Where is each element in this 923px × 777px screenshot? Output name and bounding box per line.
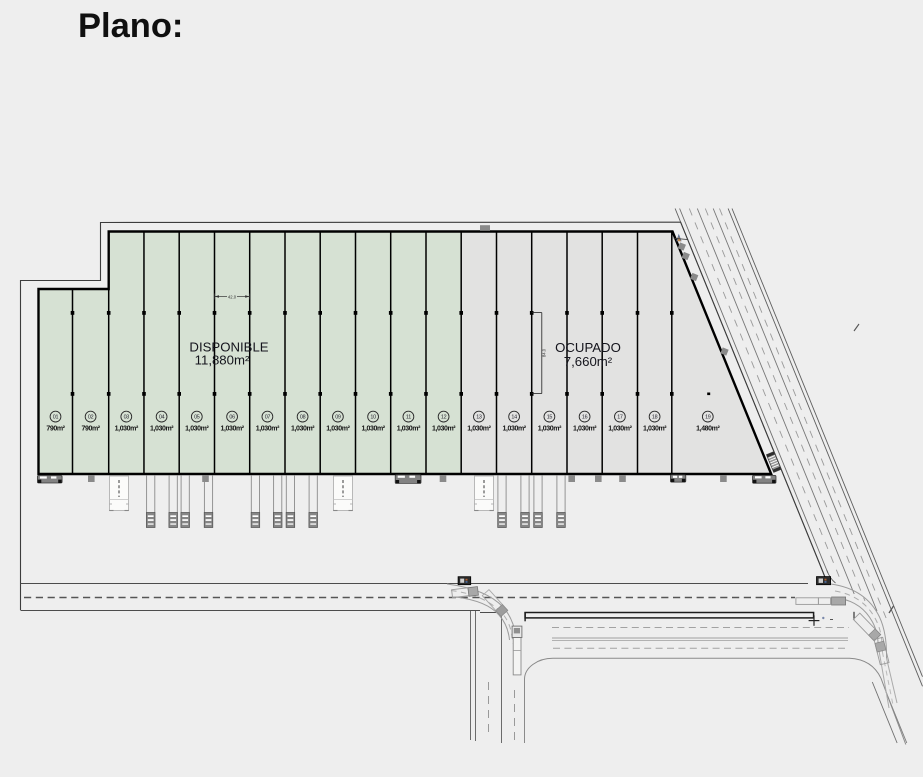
svg-text:42.0: 42.0: [228, 295, 237, 300]
svg-text:Plano:: Plano:: [78, 7, 183, 45]
svg-text:1,030m²: 1,030m²: [432, 425, 456, 432]
svg-text:15: 15: [547, 415, 553, 421]
svg-text:OCUPADO: OCUPADO: [555, 340, 621, 355]
svg-text:14: 14: [511, 415, 517, 421]
svg-text:1,030m²: 1,030m²: [538, 425, 562, 432]
svg-text:16: 16: [582, 415, 588, 421]
svg-text:05: 05: [194, 415, 200, 421]
svg-text:13: 13: [476, 415, 482, 421]
svg-text:19: 19: [705, 415, 711, 421]
svg-text:1,030m²: 1,030m²: [608, 425, 632, 432]
svg-text:11: 11: [406, 415, 411, 421]
svg-text:84.0: 84.0: [542, 348, 547, 357]
svg-text:1,030m²: 1,030m²: [643, 425, 667, 432]
svg-text:790m²: 790m²: [46, 425, 65, 432]
svg-text:1,030m²: 1,030m²: [256, 425, 280, 432]
svg-text:1,030m²: 1,030m²: [185, 425, 209, 432]
svg-text:1,030m²: 1,030m²: [326, 425, 350, 432]
svg-text:18: 18: [652, 415, 658, 421]
svg-text:1,480m²: 1,480m²: [696, 425, 720, 432]
svg-text:10: 10: [370, 415, 376, 421]
svg-text:11,880m²: 11,880m²: [195, 353, 250, 368]
svg-text:1,030m²: 1,030m²: [502, 425, 526, 432]
svg-text:03: 03: [124, 415, 130, 421]
svg-text:1,030m²: 1,030m²: [467, 425, 491, 432]
svg-text:1,030m²: 1,030m²: [220, 425, 244, 432]
svg-text:1,030m²: 1,030m²: [115, 425, 139, 432]
svg-text:7,660m²: 7,660m²: [564, 354, 613, 369]
svg-text:1,030m²: 1,030m²: [361, 425, 385, 432]
svg-text:1,030m²: 1,030m²: [291, 425, 315, 432]
svg-text:12: 12: [441, 415, 447, 421]
svg-text:1,030m²: 1,030m²: [150, 425, 174, 432]
svg-text:790m²: 790m²: [81, 425, 100, 432]
svg-text:1,030m²: 1,030m²: [397, 425, 421, 432]
svg-text:07: 07: [265, 415, 271, 421]
svg-text:06: 06: [229, 415, 235, 421]
svg-text:09: 09: [335, 415, 341, 421]
svg-text:17: 17: [617, 415, 623, 421]
svg-text:01: 01: [53, 415, 59, 421]
svg-text:02: 02: [88, 415, 94, 421]
svg-text:1,030m²: 1,030m²: [573, 425, 597, 432]
svg-text:08: 08: [300, 415, 306, 421]
svg-text:04: 04: [159, 415, 165, 421]
